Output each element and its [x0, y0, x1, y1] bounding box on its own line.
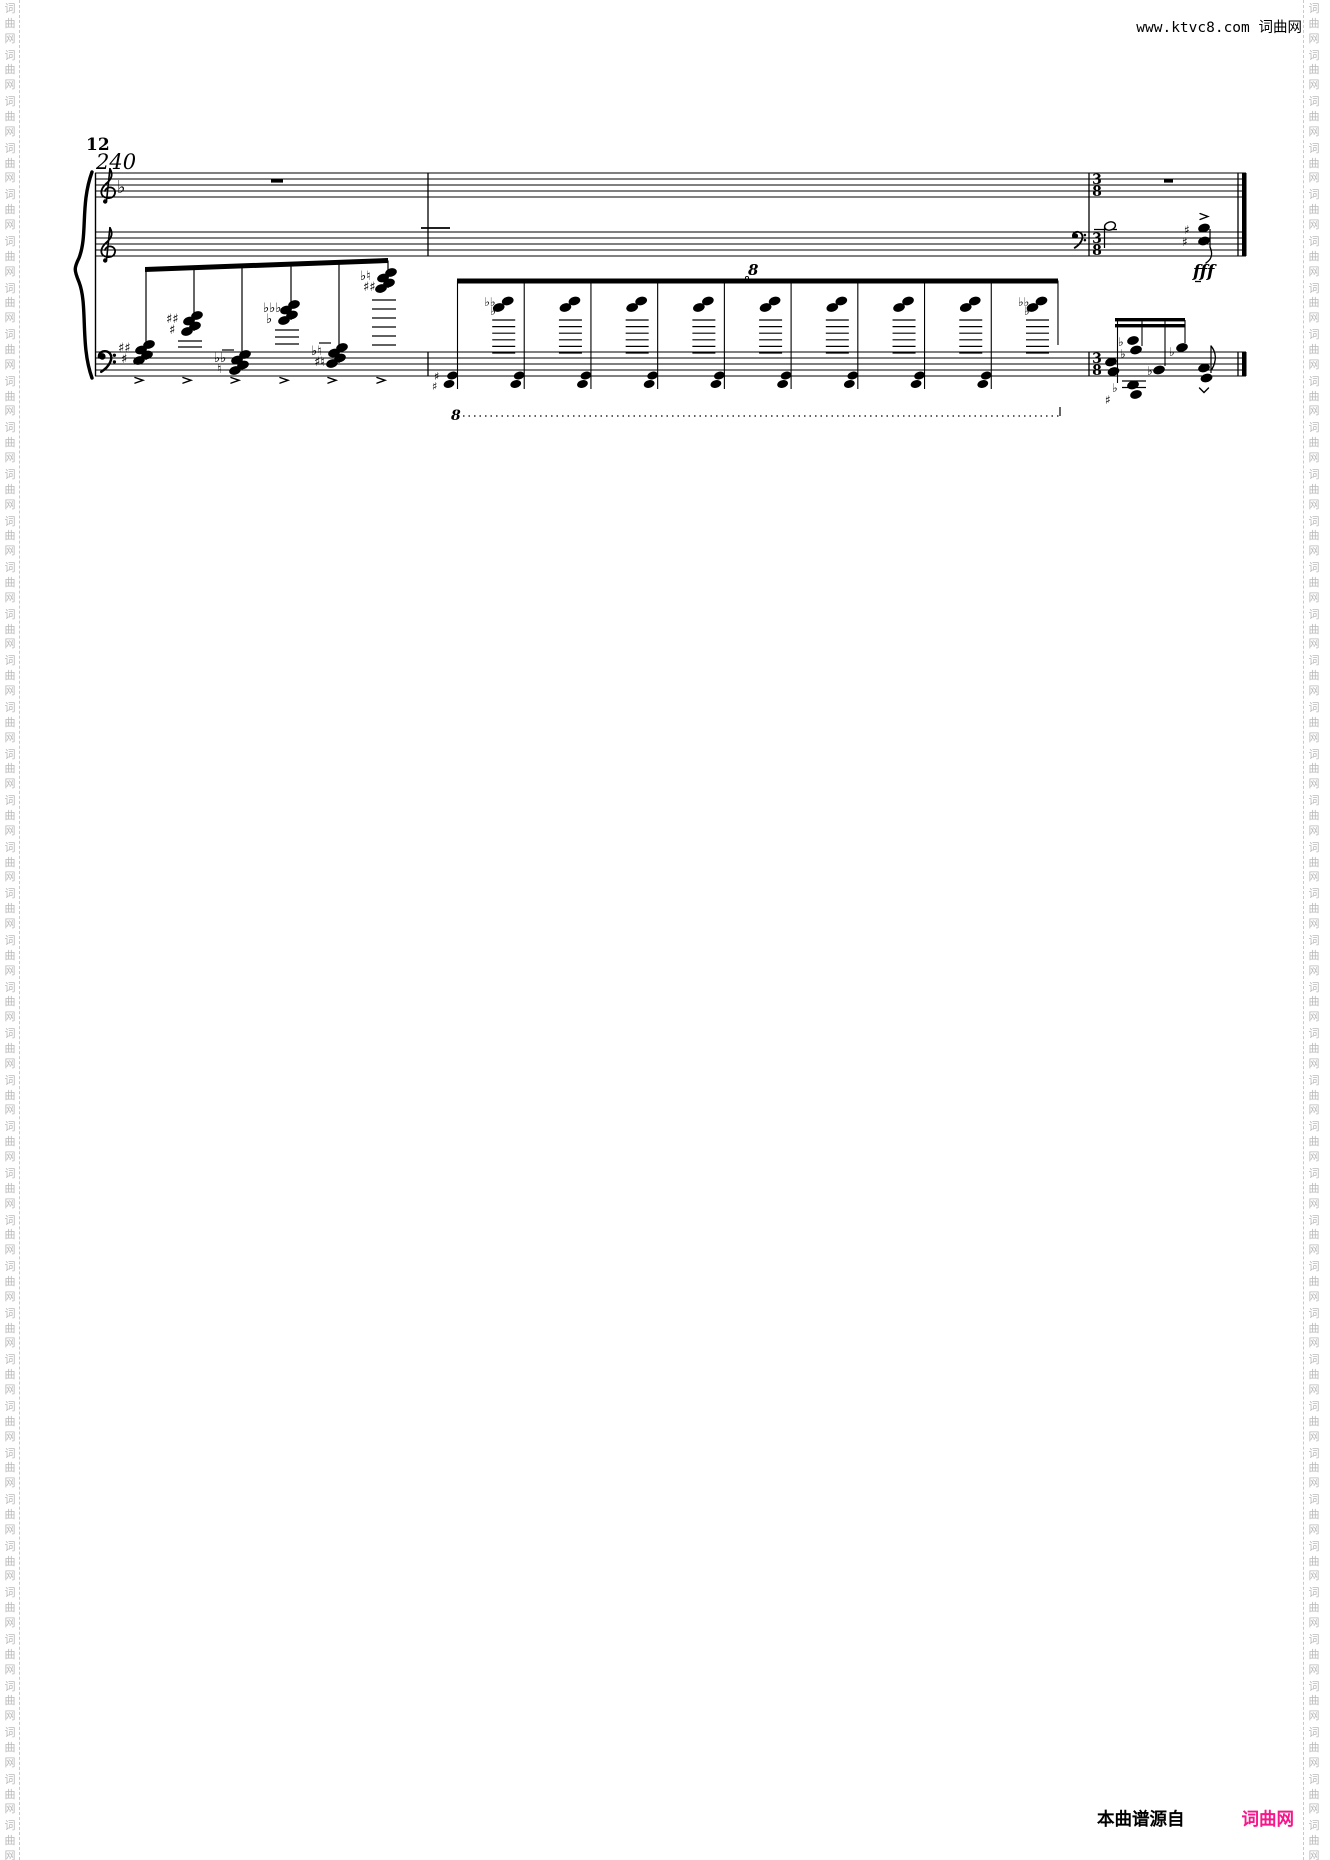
- watermark-glyph: 曲: [3, 763, 17, 774]
- watermark-glyph: 网: [3, 1803, 17, 1814]
- tremolo-run: ♯♯♭♭♭♭♭♭8: [432, 261, 1058, 393]
- watermark-glyph: 词: [1307, 1820, 1321, 1831]
- svg-text:8: 8: [1092, 184, 1102, 200]
- watermark-glyph: 词: [1307, 1587, 1321, 1598]
- watermark-glyph: 曲: [3, 1229, 17, 1240]
- watermark-glyph: 网: [3, 825, 17, 836]
- watermark-glyph: 曲: [3, 1835, 17, 1846]
- svg-text:♭: ♭: [117, 177, 126, 198]
- watermark-glyph: 词: [3, 1681, 17, 1692]
- watermark-glyph: 网: [3, 545, 17, 556]
- watermark-glyph: 词: [3, 1354, 17, 1365]
- watermark-glyph: 词: [1307, 1727, 1321, 1738]
- watermark-glyph: 曲: [3, 1509, 17, 1520]
- watermark-glyph: 曲: [1307, 530, 1321, 541]
- watermark-glyph: 曲: [3, 624, 17, 635]
- watermark-glyph: 曲: [1307, 670, 1321, 681]
- footer-attribution: 本曲谱源自: [1097, 1806, 1185, 1831]
- watermark-glyph: 网: [1307, 592, 1321, 603]
- watermark-glyph: 网: [1307, 1431, 1321, 1442]
- watermark-glyph: 词: [3, 469, 17, 480]
- watermark-glyph: 词: [3, 795, 17, 806]
- watermark-glyph: 词: [1307, 1634, 1321, 1645]
- watermark-glyph: 词: [1307, 1354, 1321, 1365]
- svg-text:♯: ♯: [1182, 235, 1188, 249]
- watermark-glyph: 词: [3, 982, 17, 993]
- watermark-glyph: 网: [3, 1384, 17, 1395]
- watermark-glyph: 网: [3, 685, 17, 696]
- watermark-glyph: 词: [3, 702, 17, 713]
- watermark-glyph: 网: [3, 1477, 17, 1488]
- watermark-glyph: 网: [3, 1524, 17, 1535]
- svg-text:♯: ♯: [169, 323, 175, 338]
- watermark-glyph: 网: [1307, 1337, 1321, 1348]
- svg-text:♭: ♭: [1120, 347, 1126, 361]
- watermark-glyph: 网: [3, 965, 17, 976]
- watermark-glyph: 词: [1307, 982, 1321, 993]
- watermark-glyph: 网: [1307, 638, 1321, 649]
- watermark-glyph: 网: [1307, 1058, 1321, 1069]
- watermark-glyph: 网: [3, 1617, 17, 1628]
- watermark-glyph: 曲: [3, 1323, 17, 1334]
- ottava-bassa-line: 8: [451, 407, 1060, 424]
- watermark-glyph: 词: [1307, 935, 1321, 946]
- watermark-glyph: 词: [3, 655, 17, 666]
- svg-text:♭: ♭: [1147, 364, 1153, 378]
- watermark-glyph: 曲: [3, 1742, 17, 1753]
- watermark-glyph: 曲: [3, 1649, 17, 1660]
- watermark-glyph: 词: [3, 749, 17, 760]
- watermark-glyph: 词: [3, 1587, 17, 1598]
- watermark-glyph: 词: [1307, 1541, 1321, 1552]
- watermark-glyph: 词: [3, 562, 17, 573]
- svg-text:♯♮: ♯♮: [314, 355, 325, 370]
- watermark-glyph: 网: [1307, 1664, 1321, 1675]
- watermark-glyph: 网: [3, 1151, 17, 1162]
- watermark-glyph: 曲: [3, 1462, 17, 1473]
- watermark-glyph: 网: [3, 1757, 17, 1768]
- watermark-glyph: 曲: [1307, 1556, 1321, 1567]
- svg-text:♯♯: ♯♯: [363, 280, 376, 295]
- watermark-glyph: 曲: [1307, 1369, 1321, 1380]
- watermark-glyph: 词: [3, 888, 17, 899]
- watermark-glyph: 词: [3, 1028, 17, 1039]
- watermark-glyph: 曲: [3, 1276, 17, 1287]
- watermark-glyph: 曲: [1307, 1789, 1321, 1800]
- watermark-glyph: 网: [1307, 545, 1321, 556]
- final-measure-lower: ♭♯♭♭♭♭: [1104, 318, 1215, 407]
- watermark-glyph: 曲: [1307, 1462, 1321, 1473]
- footer-site-link[interactable]: 词曲网: [1242, 1806, 1295, 1831]
- watermark-glyph: 网: [1307, 1617, 1321, 1628]
- watermark-glyph: 词: [3, 516, 17, 527]
- watermark-glyph: 网: [1307, 1198, 1321, 1209]
- watermark-glyph: 词: [3, 1401, 17, 1412]
- watermark-glyph: 曲: [3, 717, 17, 728]
- watermark-glyph: 曲: [1307, 1276, 1321, 1287]
- watermark-glyph: 网: [3, 871, 17, 882]
- watermark-glyph: 曲: [3, 1043, 17, 1054]
- watermark-glyph: 曲: [3, 1183, 17, 1194]
- watermark-glyph: 网: [3, 1104, 17, 1115]
- watermark-glyph: 网: [3, 1664, 17, 1675]
- watermark-glyph: 网: [1307, 685, 1321, 696]
- watermark-glyph: 网: [3, 732, 17, 743]
- watermark-glyph: 曲: [1307, 1229, 1321, 1240]
- watermark-glyph: 曲: [3, 857, 17, 868]
- watermark-glyph: 曲: [1307, 1090, 1321, 1101]
- watermark-glyph: 网: [1307, 918, 1321, 929]
- watermark-glyph: 词: [1307, 1261, 1321, 1272]
- watermark-glyph: 词: [1307, 609, 1321, 620]
- sheet-music-page: 词曲网词曲网词曲网词曲网词曲网词曲网词曲网词曲网词曲网词曲网词曲网词曲网词曲网词…: [0, 0, 1330, 1860]
- watermark-glyph: 网: [3, 1244, 17, 1255]
- watermark-glyph: 曲: [1307, 950, 1321, 961]
- watermark-glyph: 词: [1307, 655, 1321, 666]
- watermark-glyph: 网: [3, 778, 17, 789]
- watermark-glyph: 曲: [3, 1556, 17, 1567]
- watermark-glyph: 曲: [1307, 577, 1321, 588]
- watermark-glyph: 曲: [3, 1602, 17, 1613]
- watermark-glyph: 曲: [1307, 1602, 1321, 1613]
- watermark-glyph: 网: [1307, 1803, 1321, 1814]
- watermark-glyph: 词: [1307, 702, 1321, 713]
- watermark-glyph: 词: [1307, 1075, 1321, 1086]
- watermark-glyph: 曲: [3, 1369, 17, 1380]
- watermark-glyph: 词: [3, 1774, 17, 1785]
- watermark-glyph: 网: [1307, 499, 1321, 510]
- watermark-glyph: 词: [3, 935, 17, 946]
- svg-text:♯: ♯: [432, 380, 437, 393]
- watermark-glyph: 网: [3, 499, 17, 510]
- watermark-glyph: 网: [1307, 1011, 1321, 1022]
- svg-text:♭: ♭: [1169, 345, 1175, 359]
- watermark-glyph: 曲: [1307, 1649, 1321, 1660]
- watermark-glyph: 网: [3, 1570, 17, 1581]
- watermark-glyph: 词: [3, 1541, 17, 1552]
- watermark-glyph: 词: [3, 1634, 17, 1645]
- svg-text:♭: ♭: [1024, 304, 1030, 318]
- watermark-glyph: 曲: [1307, 1835, 1321, 1846]
- watermark-glyph: 曲: [1307, 1509, 1321, 1520]
- watermark-glyph: 曲: [1307, 1136, 1321, 1147]
- svg-text:♭: ♭: [266, 312, 272, 327]
- watermark-glyph: 词: [1307, 1681, 1321, 1692]
- watermark-glyph: 词: [1307, 1308, 1321, 1319]
- watermark-glyph: 曲: [1307, 624, 1321, 635]
- watermark-glyph: 曲: [1307, 1043, 1321, 1054]
- watermark-glyph: 曲: [3, 530, 17, 541]
- watermark-glyph: 词: [1307, 1448, 1321, 1459]
- watermark-glyph: 网: [3, 1291, 17, 1302]
- watermark-glyph: 网: [1307, 732, 1321, 743]
- watermark-glyph: 词: [1307, 562, 1321, 573]
- watermark-glyph: 词: [3, 1121, 17, 1132]
- watermark-glyph: 词: [3, 1727, 17, 1738]
- svg-text:♯: ♯: [1105, 393, 1111, 407]
- watermark-glyph: 词: [3, 1261, 17, 1272]
- watermark-glyph: 网: [3, 638, 17, 649]
- watermark-glyph: 曲: [3, 1136, 17, 1147]
- watermark-glyph: 网: [1307, 1384, 1321, 1395]
- svg-text:8: 8: [1092, 363, 1102, 379]
- watermark-glyph: 网: [3, 1710, 17, 1721]
- watermark-glyph: 词: [3, 1168, 17, 1179]
- watermark-glyph: 曲: [1307, 810, 1321, 821]
- watermark-glyph: 网: [1307, 1850, 1321, 1860]
- watermark-glyph: 曲: [3, 1090, 17, 1101]
- watermark-glyph: 网: [1307, 825, 1321, 836]
- watermark-glyph: 网: [1307, 1244, 1321, 1255]
- watermark-glyph: 词: [1307, 795, 1321, 806]
- watermark-glyph: 网: [1307, 871, 1321, 882]
- watermark-glyph: 词: [3, 1075, 17, 1086]
- watermark-glyph: 网: [3, 592, 17, 603]
- watermark-glyph: 曲: [1307, 1183, 1321, 1194]
- watermark-glyph: 网: [3, 1431, 17, 1442]
- watermark-glyph: 词: [1307, 1401, 1321, 1412]
- grand-staff: ♭12240383838: [75, 135, 1246, 379]
- watermark-glyph: 曲: [1307, 1695, 1321, 1706]
- svg-text:8: 8: [748, 261, 759, 279]
- watermark-glyph: 词: [1307, 1121, 1321, 1132]
- watermark-glyph: 网: [1307, 1710, 1321, 1721]
- watermark-glyph: 曲: [1307, 996, 1321, 1007]
- watermark-glyph: 词: [3, 1308, 17, 1319]
- svg-text:♭: ♭: [490, 304, 496, 318]
- watermark-glyph: 词: [1307, 888, 1321, 899]
- watermark-glyph: 曲: [1307, 857, 1321, 868]
- watermark-glyph: 曲: [1307, 1323, 1321, 1334]
- watermark-glyph: 词: [3, 1215, 17, 1226]
- watermark-glyph: 曲: [3, 484, 17, 495]
- watermark-glyph: 词: [3, 609, 17, 620]
- watermark-glyph: 网: [1307, 1477, 1321, 1488]
- watermark-glyph: 网: [1307, 1291, 1321, 1302]
- watermark-glyph: 曲: [3, 1416, 17, 1427]
- watermark-glyph: 网: [3, 1850, 17, 1860]
- svg-text:♭: ♭: [1112, 381, 1118, 395]
- watermark-glyph: 词: [3, 1820, 17, 1831]
- watermark-glyph: 词: [1307, 1774, 1321, 1785]
- watermark-glyph: 网: [3, 918, 17, 929]
- watermark-glyph: 网: [1307, 1570, 1321, 1581]
- svg-text:♮: ♮: [217, 362, 222, 377]
- watermark-glyph: 词: [1307, 469, 1321, 480]
- watermark-glyph: 曲: [3, 810, 17, 821]
- watermark-glyph: 曲: [1307, 484, 1321, 495]
- svg-text:8: 8: [451, 408, 461, 424]
- watermark-glyph: 曲: [3, 670, 17, 681]
- watermark-glyph: 词: [3, 842, 17, 853]
- watermark-glyph: 词: [1307, 749, 1321, 760]
- watermark-glyph: 网: [3, 1011, 17, 1022]
- watermark-glyph: 曲: [1307, 763, 1321, 774]
- watermark-glyph: 词: [1307, 1028, 1321, 1039]
- watermark-glyph: 网: [3, 1058, 17, 1069]
- watermark-glyph: 曲: [1307, 1416, 1321, 1427]
- watermark-glyph: 网: [1307, 1524, 1321, 1535]
- watermark-glyph: 词: [3, 1448, 17, 1459]
- watermark-glyph: 词: [3, 1494, 17, 1505]
- watermark-glyph: 词: [1307, 1168, 1321, 1179]
- watermark-glyph: 曲: [3, 996, 17, 1007]
- watermark-glyph: 曲: [1307, 1742, 1321, 1753]
- watermark-glyph: 曲: [3, 903, 17, 914]
- svg-text:8: 8: [1092, 243, 1102, 259]
- watermark-glyph: 曲: [1307, 903, 1321, 914]
- watermark-glyph: 曲: [3, 577, 17, 588]
- watermark-glyph: 网: [1307, 965, 1321, 976]
- watermark-glyph: 网: [1307, 1104, 1321, 1115]
- watermark-glyph: 曲: [3, 950, 17, 961]
- final-measure-upper: ♯♯fff: [1094, 214, 1217, 283]
- watermark-glyph: 网: [3, 1337, 17, 1348]
- watermark-glyph: 词: [1307, 1215, 1321, 1226]
- watermark-glyph: 网: [3, 1198, 17, 1209]
- footer-credit: 本曲谱源自 词曲网: [1097, 1806, 1294, 1831]
- watermark-glyph: 网: [1307, 778, 1321, 789]
- watermark-glyph: 曲: [3, 1789, 17, 1800]
- sheet-music-score: ♭12240383838♯♯♯♯♯♯♭♭♮♭♭♭♭♭♮♯♮♭♮♯♯♯♯♭♭♭♭♭…: [0, 0, 1330, 460]
- watermark-glyph: 网: [1307, 1151, 1321, 1162]
- svg-text:240: 240: [95, 150, 136, 174]
- watermark-glyph: 词: [1307, 842, 1321, 853]
- svg-text:♯: ♯: [121, 352, 127, 367]
- watermark-glyph: 词: [1307, 516, 1321, 527]
- watermark-glyph: 曲: [1307, 717, 1321, 728]
- svg-text:fff: fff: [1192, 262, 1217, 282]
- watermark-glyph: 曲: [3, 1695, 17, 1706]
- watermark-glyph: 网: [1307, 1757, 1321, 1768]
- watermark-glyph: 词: [1307, 1494, 1321, 1505]
